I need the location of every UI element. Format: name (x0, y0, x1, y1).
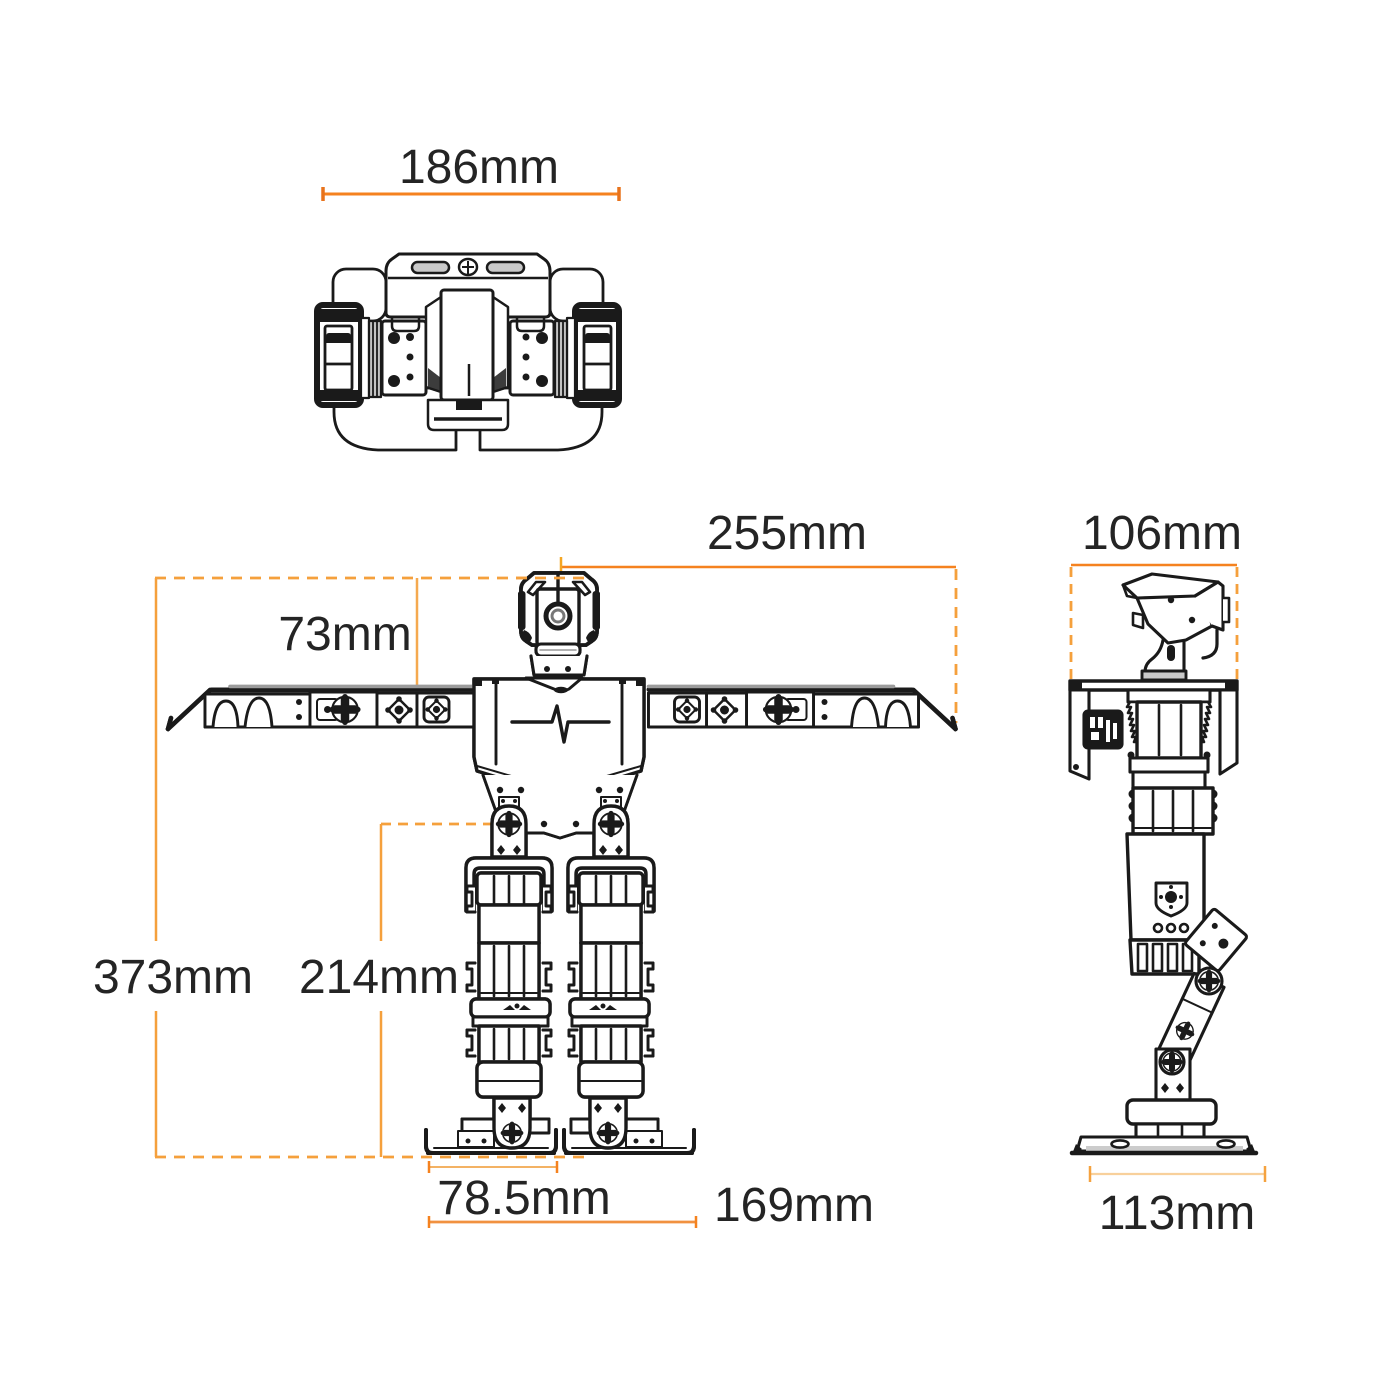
svg-text:106mm: 106mm (1082, 507, 1242, 560)
svg-text:73mm: 73mm (278, 608, 411, 661)
svg-text:113mm: 113mm (1099, 1187, 1256, 1240)
svg-text:78.5mm: 78.5mm (437, 1172, 610, 1225)
svg-text:214mm: 214mm (299, 951, 459, 1004)
svg-text:255mm: 255mm (707, 507, 867, 560)
svg-text:169mm: 169mm (714, 1179, 874, 1232)
svg-text:186mm: 186mm (399, 141, 559, 194)
svg-text:373mm: 373mm (93, 951, 253, 1004)
